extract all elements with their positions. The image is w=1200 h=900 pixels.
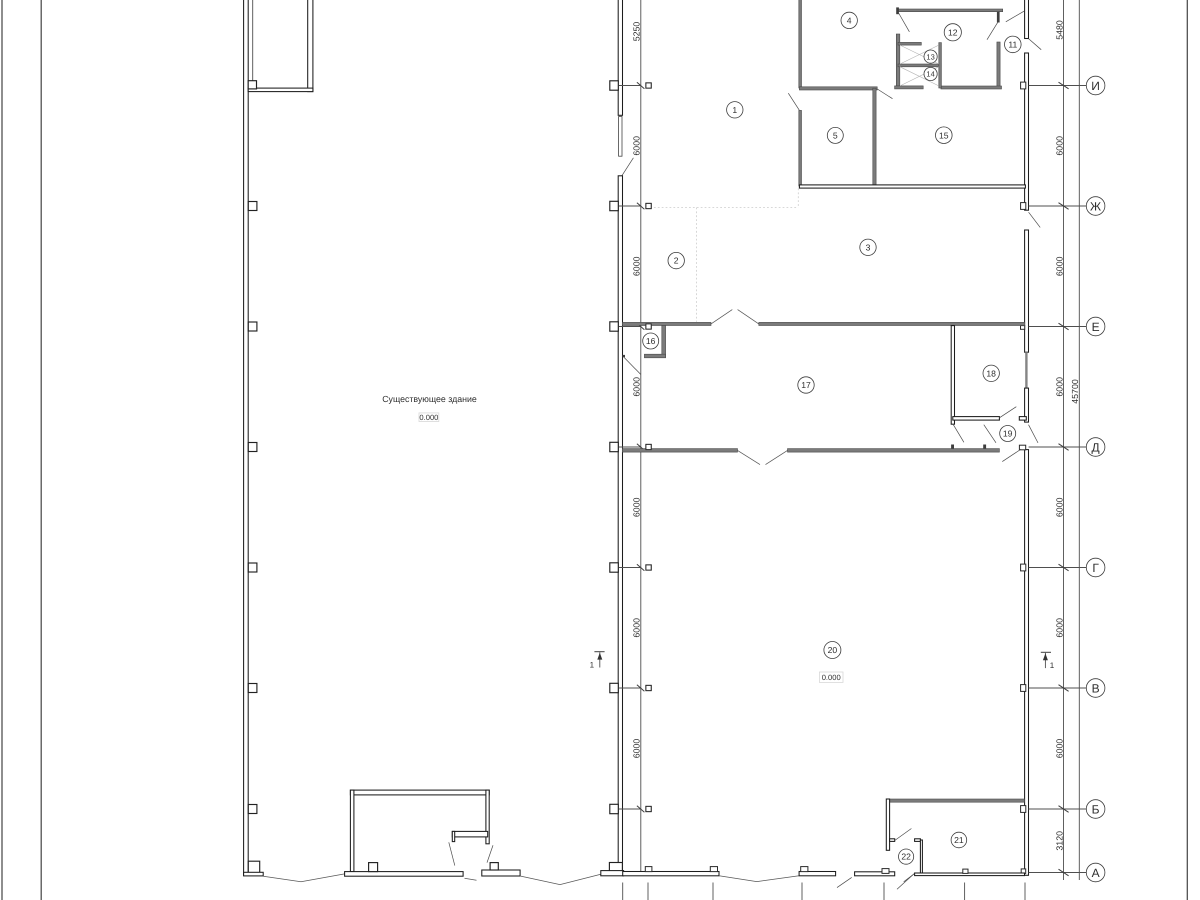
svg-text:6000: 6000 [1054,739,1064,759]
svg-text:3120: 3120 [1054,831,1064,851]
svg-text:Е: Е [1092,320,1100,334]
svg-text:Существующее здание: Существующее здание [382,394,477,404]
svg-text:14: 14 [926,70,934,79]
svg-text:1: 1 [732,105,737,115]
svg-text:Д: Д [1092,440,1100,454]
svg-text:3: 3 [866,242,871,252]
svg-text:11: 11 [1008,40,1017,50]
svg-text:6000: 6000 [631,497,641,517]
svg-text:6000: 6000 [631,256,641,276]
svg-text:6000: 6000 [631,739,641,759]
svg-text:1: 1 [1050,661,1055,670]
svg-text:4: 4 [847,16,852,26]
svg-text:Б: Б [1092,802,1100,816]
svg-text:6000: 6000 [631,377,641,397]
svg-text:Г: Г [1092,561,1099,575]
svg-text:6000: 6000 [1054,256,1064,276]
svg-text:6000: 6000 [1054,618,1064,638]
svg-text:5: 5 [833,131,838,141]
svg-text:0.000: 0.000 [822,673,841,682]
svg-text:12: 12 [948,27,958,37]
svg-text:2: 2 [674,256,679,266]
svg-text:А: А [1092,866,1100,880]
svg-text:5480: 5480 [1054,20,1064,40]
svg-text:0.000: 0.000 [419,413,438,422]
svg-text:Ж: Ж [1090,199,1101,213]
svg-text:19: 19 [1003,429,1013,439]
svg-text:45700: 45700 [1070,379,1080,404]
svg-text:6000: 6000 [1054,497,1064,517]
svg-text:6000: 6000 [631,136,641,156]
svg-text:И: И [1091,79,1100,93]
svg-text:6000: 6000 [1054,377,1064,397]
svg-text:15: 15 [939,130,949,140]
svg-text:17: 17 [801,380,811,390]
svg-text:20: 20 [828,645,838,655]
svg-text:В: В [1092,681,1100,695]
svg-text:5250: 5250 [631,22,641,42]
svg-text:21: 21 [954,835,964,845]
svg-text:22: 22 [901,852,911,862]
svg-text:16: 16 [646,336,656,346]
svg-text:18: 18 [986,368,996,378]
svg-text:13: 13 [926,52,934,61]
svg-text:6000: 6000 [631,618,641,638]
svg-text:6000: 6000 [1054,136,1064,156]
svg-text:1: 1 [590,661,595,670]
